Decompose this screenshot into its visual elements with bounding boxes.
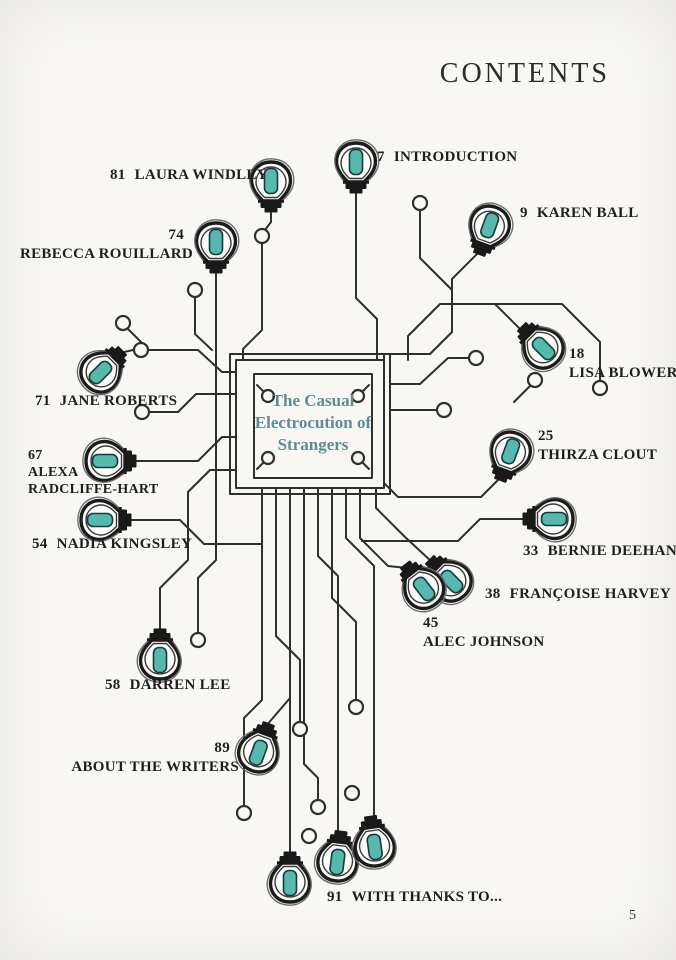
toc-page-number: 33 (523, 543, 539, 559)
toc-page-number: 89 (71, 739, 230, 758)
bulb-icon-thanks-1 (265, 852, 314, 908)
toc-label: LAURA WINDLEY (135, 167, 268, 183)
toc-entry-introduction: 7INTRODUCTION (377, 148, 517, 167)
bulb-icon-lisa-blower (503, 309, 577, 383)
toc-entry-alec-johnson: 45 ALEC JOHNSON (423, 614, 545, 652)
toc-label: INTRODUCTION (394, 149, 518, 165)
toc-page-number: 74 (20, 226, 184, 245)
toc-entry-rebecca-rouillard: 74 REBECCA ROUILLARD (20, 226, 193, 264)
toc-entry-laura-windley: 81LAURA WINDLEY (110, 166, 268, 185)
toc-label: FRANÇOISE HARVEY (510, 586, 671, 602)
toc-entry-lisa-blower: 18 LISA BLOWER (569, 345, 676, 383)
toc-label: RADCLIFFE-HART (28, 481, 159, 498)
page-title: CONTENTS (440, 58, 610, 90)
toc-entry-alexa-radcliffe-hart: 67 ALEXA RADCLIFFE-HART (28, 447, 159, 498)
bulb-icon-introduction (332, 137, 381, 193)
bulb-icon-bernie-deehan (523, 495, 579, 544)
toc-page-number: 54 (32, 536, 48, 552)
toc-page-number: 91 (327, 889, 343, 905)
toc-label: THIRZA CLOUT (538, 446, 657, 465)
toc-label: REBECCA ROUILLARD (20, 245, 193, 264)
toc-entry-with-thanks-to: 91WITH THANKS TO... (327, 888, 502, 907)
toc-label: ALEC JOHNSON (423, 633, 545, 652)
toc-label: DARREN LEE (130, 677, 231, 693)
toc-entry-karen-ball: 9KAREN BALL (520, 204, 639, 223)
book-title: The Casual Electrocution of Strangers (236, 390, 390, 456)
toc-label: KAREN BALL (537, 205, 639, 221)
toc-entry-thirza-clout: 25 THIRZA CLOUT (538, 427, 657, 465)
toc-page-number: 67 (28, 447, 150, 464)
bulb-icon-thirza-clout (477, 420, 542, 490)
toc-entry-francoise-harvey: 38FRANÇOISE HARVEY (485, 585, 671, 604)
toc-page-number: 7 (377, 149, 385, 165)
book-contents-page: CONTENTS The Casual Electrocution of Str… (0, 0, 676, 960)
toc-label: ALEXA (28, 464, 159, 481)
toc-label: LISA BLOWER (569, 364, 676, 383)
toc-label: BERNIE DEEHAN (548, 543, 676, 559)
toc-page-number: 25 (538, 427, 648, 446)
toc-label: WITH THANKS TO... (352, 889, 503, 905)
toc-entry-nadia-kingsley: 54NADIA KINGSLEY (32, 535, 192, 554)
toc-page-number: 81 (110, 167, 126, 183)
toc-label: ABOUT THE WRITERS (71, 758, 239, 777)
bulb-icon-karen-ball (456, 194, 521, 264)
bulb-icon-rebecca-rouillard (192, 217, 241, 273)
toc-entry-darren-lee: 58DARREN LEE (105, 676, 231, 695)
book-title-line1: The Casual (272, 391, 355, 410)
toc-entry-bernie-deehan: 33BERNIE DEEHAN (523, 542, 676, 561)
folio-page-number: 5 (629, 908, 636, 924)
toc-page-number: 9 (520, 205, 528, 221)
toc-page-number: 45 (423, 614, 536, 633)
toc-page-number: 18 (569, 345, 669, 364)
toc-page-number: 38 (485, 586, 501, 602)
toc-entry-about-the-writers: 89 ABOUT THE WRITERS (71, 739, 239, 777)
toc-label: JANE ROBERTS (60, 393, 178, 409)
toc-label: NADIA KINGSLEY (57, 536, 192, 552)
toc-page-number: 71 (35, 393, 51, 409)
toc-page-number: 58 (105, 677, 121, 693)
book-title-line2: Electrocution (255, 413, 353, 432)
toc-entry-jane-roberts: 71JANE ROBERTS (35, 392, 177, 411)
